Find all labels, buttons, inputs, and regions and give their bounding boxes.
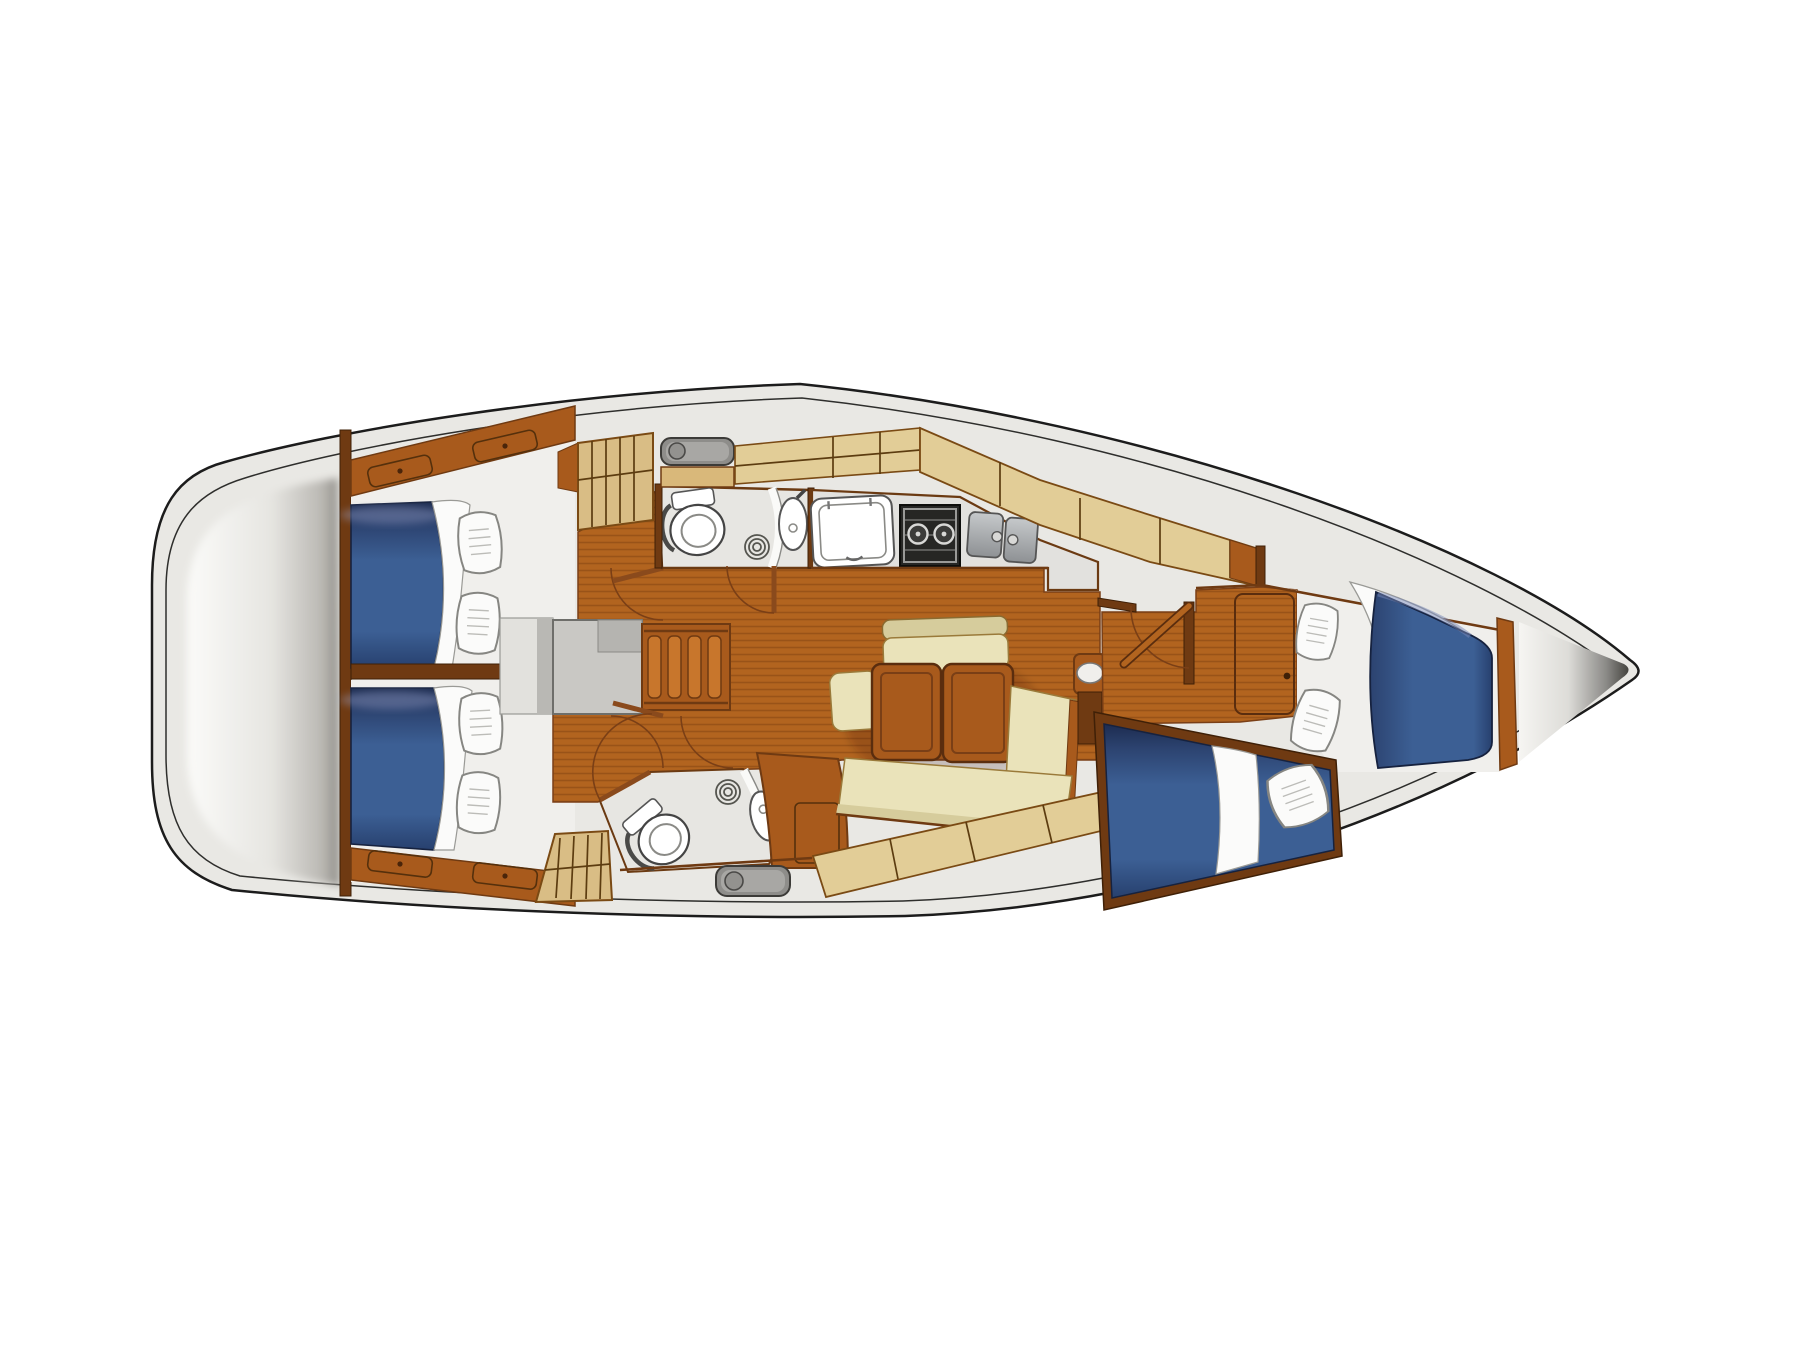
- lazarette-floor: [187, 478, 340, 886]
- deck-hatch: [661, 438, 734, 465]
- floor-plan-canvas: [0, 0, 1798, 1348]
- landing-step-shade: [537, 618, 553, 714]
- hatch-handle: [669, 443, 685, 459]
- pillow: [456, 510, 504, 575]
- pillow: [455, 592, 501, 655]
- icebox: [810, 495, 895, 568]
- locker-bulkhead: [1497, 618, 1517, 770]
- yacht-floor-plan: [0, 0, 1798, 1348]
- step-tread: [648, 636, 661, 698]
- stove: [900, 505, 960, 566]
- mattress-highlight: [340, 506, 444, 524]
- burner-center: [942, 532, 947, 537]
- sink-faucet: [992, 531, 1003, 542]
- step-tread: [708, 636, 721, 698]
- double-berth-mattress: [351, 688, 445, 850]
- table-leaf: [872, 664, 941, 760]
- table-leaf: [943, 664, 1013, 762]
- pillow: [458, 692, 504, 755]
- pillow: [455, 771, 502, 835]
- aft-bulkhead: [340, 430, 351, 896]
- drawer-knob: [502, 443, 507, 448]
- stern-lazarette: [187, 478, 340, 886]
- locker-wedge: [558, 443, 578, 492]
- drawer-knob: [502, 873, 507, 878]
- mattress-highlight: [340, 691, 444, 709]
- post-top: [1077, 663, 1103, 683]
- panel-handle: [1284, 673, 1291, 680]
- drawer-knob: [397, 468, 402, 473]
- companionway: [500, 618, 730, 714]
- deck-hatch: [716, 866, 790, 896]
- hatch-handle: [725, 872, 743, 890]
- engine-hatch-panel: [598, 620, 642, 652]
- drawer-knob: [397, 861, 402, 866]
- head-wall: [655, 484, 662, 568]
- step-tread: [688, 636, 701, 698]
- locker-shelf: [661, 467, 734, 487]
- step-tread: [668, 636, 681, 698]
- sink-faucet: [1007, 534, 1018, 545]
- double-berth-mattress: [351, 502, 444, 668]
- burner-center: [916, 532, 921, 537]
- folding-table: [872, 664, 1013, 762]
- hanging-locker: [578, 433, 653, 530]
